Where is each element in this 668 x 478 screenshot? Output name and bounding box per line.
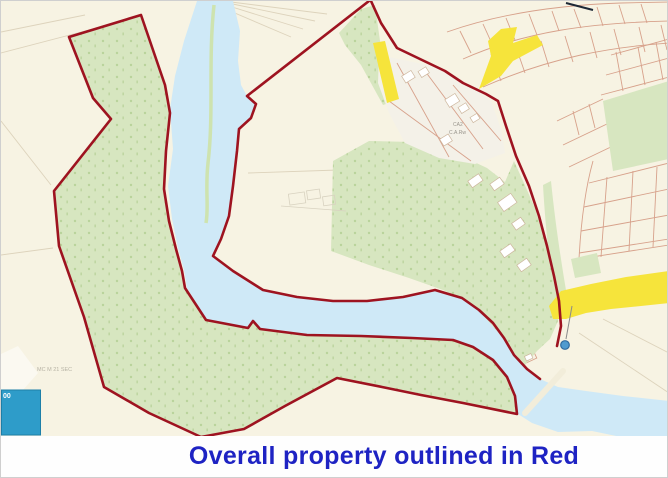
- map-canvas: CA2 C.A.Rw: [1, 1, 668, 478]
- farm-label-line2: C.A.Rw: [449, 130, 466, 136]
- property-map-image: CA2 C.A.Rw: [0, 0, 668, 478]
- caption-text: Overall property outlined in Red: [189, 442, 579, 471]
- field-label: MC M 21 SEC: [37, 367, 72, 373]
- legend-swatch-label: 00: [3, 393, 11, 400]
- farm-label-line1: CA2: [453, 122, 463, 128]
- location-marker-icon: [561, 341, 570, 350]
- caption-band: Overall property outlined in Red: [1, 436, 667, 477]
- legend-swatch: 00: [2, 390, 41, 435]
